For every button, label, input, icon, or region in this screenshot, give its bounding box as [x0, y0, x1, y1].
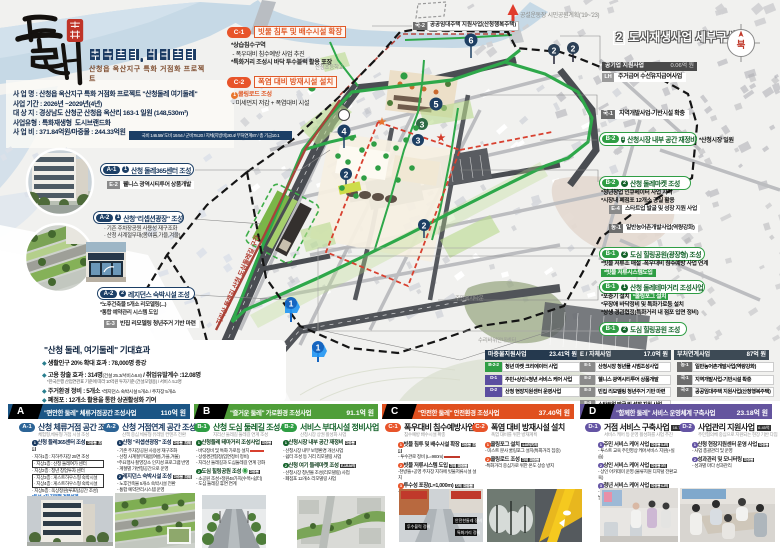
- svg-text:특화거리 정비: 특화거리 정비: [457, 529, 481, 535]
- svg-text:2: 2: [344, 170, 349, 180]
- svg-text:안전한둘레 정비: 안전한둘레 정비: [455, 517, 482, 523]
- svg-text:3: 3: [420, 120, 425, 130]
- svg-text:1: 1: [316, 343, 321, 353]
- svg-text:2: 2: [552, 46, 557, 56]
- svg-text:3: 3: [416, 136, 421, 146]
- svg-text:★: ★: [378, 117, 387, 128]
- svg-text:★: ★: [437, 133, 446, 144]
- svg-text:5: 5: [433, 100, 438, 110]
- svg-text:2: 2: [571, 44, 576, 54]
- svg-text:6: 6: [468, 36, 473, 46]
- svg-text:북: 북: [737, 40, 746, 51]
- svg-text:2: 2: [422, 221, 427, 231]
- svg-text:4: 4: [341, 127, 346, 137]
- svg-text:투수블럭 정비: 투수블럭 정비: [407, 523, 431, 529]
